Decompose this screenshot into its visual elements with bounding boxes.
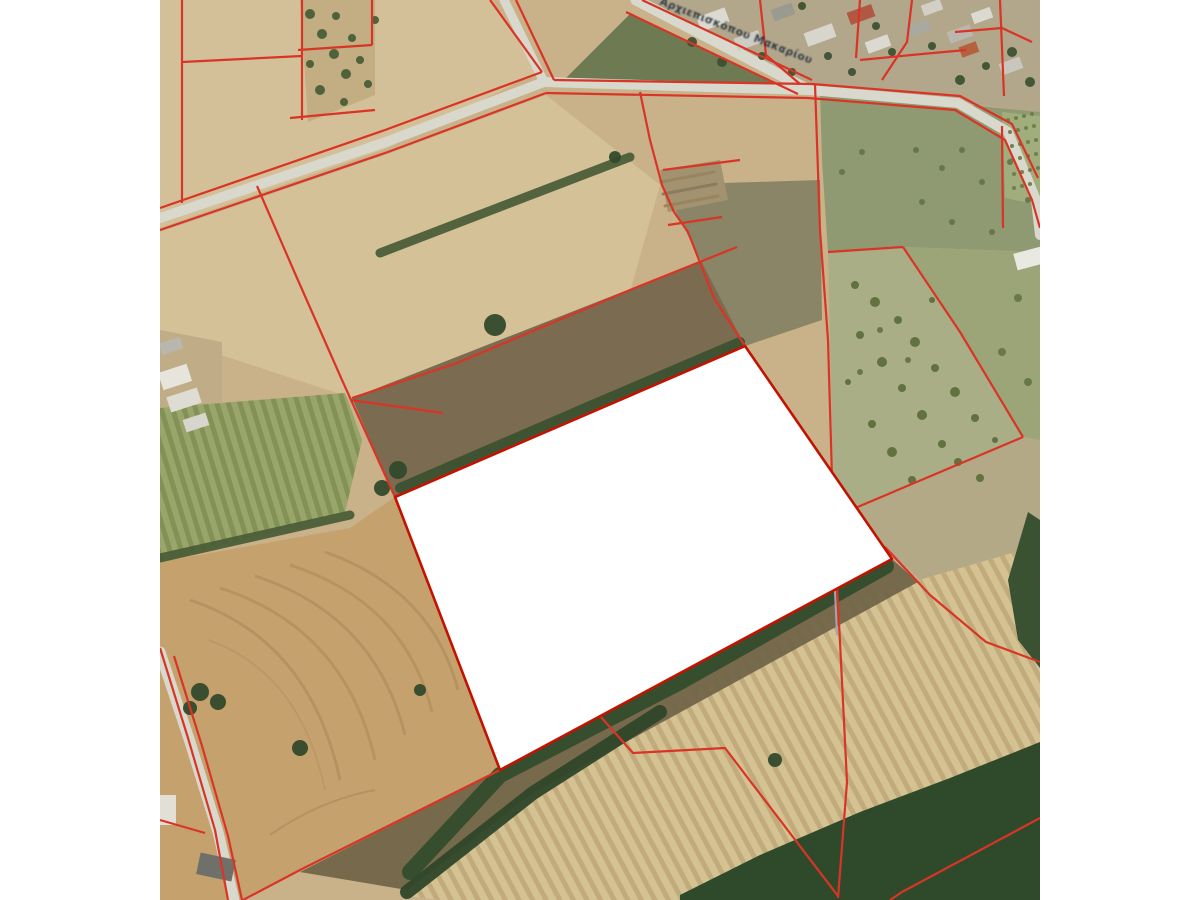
tree <box>484 314 506 336</box>
tree <box>1010 144 1014 148</box>
tree <box>979 179 985 185</box>
tree <box>877 327 883 333</box>
tree <box>1030 112 1034 116</box>
tree <box>1014 116 1018 120</box>
tree <box>998 348 1006 356</box>
tree <box>976 474 984 482</box>
tree <box>856 331 864 339</box>
tree <box>1028 182 1032 186</box>
tree <box>341 69 351 79</box>
tree <box>1008 130 1012 134</box>
tree <box>894 316 902 324</box>
tree <box>1024 126 1028 130</box>
left-white-margin <box>0 0 160 900</box>
tree <box>898 384 906 392</box>
tree <box>851 281 859 289</box>
tree <box>959 147 965 153</box>
tree <box>315 85 325 95</box>
tree <box>1032 124 1036 128</box>
tree <box>950 387 960 397</box>
tree <box>955 75 965 85</box>
tree <box>340 98 348 106</box>
tree <box>1022 114 1026 118</box>
tree <box>857 369 863 375</box>
tree <box>913 147 919 153</box>
tree <box>877 357 887 367</box>
tree <box>292 740 308 756</box>
tree <box>389 461 407 479</box>
tree <box>1012 186 1016 190</box>
tree <box>917 410 927 420</box>
tree <box>931 364 939 372</box>
tree <box>992 437 998 443</box>
tree <box>872 22 880 30</box>
tree <box>1028 168 1032 172</box>
tree <box>887 447 897 457</box>
tree <box>768 753 782 767</box>
tree <box>609 151 621 163</box>
tree <box>1020 184 1024 188</box>
tree <box>868 420 876 428</box>
tree <box>305 9 315 19</box>
tree <box>332 12 340 20</box>
tree <box>210 694 226 710</box>
map-canvas: Αρχιεπισκόπου Μακαρίου <box>160 0 1040 900</box>
tree <box>905 357 911 363</box>
tree <box>939 165 945 171</box>
tree <box>1014 294 1022 302</box>
tree <box>1018 156 1022 160</box>
tree <box>1026 140 1030 144</box>
tree <box>848 68 856 76</box>
tree <box>348 34 356 42</box>
tree <box>1007 47 1017 57</box>
tree <box>989 229 995 235</box>
tree <box>928 42 936 50</box>
tree <box>1024 378 1032 386</box>
tree <box>845 379 851 385</box>
tree <box>870 297 880 307</box>
tree <box>949 219 955 225</box>
tree <box>364 80 372 88</box>
tree <box>982 62 990 70</box>
tree <box>919 199 925 205</box>
right-white-margin <box>1040 0 1200 900</box>
tree <box>1034 152 1038 156</box>
tree <box>824 52 832 60</box>
tree <box>356 56 364 64</box>
tree <box>306 60 314 68</box>
tree <box>888 48 896 56</box>
tree <box>859 149 865 155</box>
tree <box>191 683 209 701</box>
tree <box>839 169 845 175</box>
tree <box>1012 172 1016 176</box>
tree <box>414 684 426 696</box>
parcel-boundary-line <box>1002 126 1003 228</box>
listing-map-screenshot: Αρχιεπισκόπου Μακαρίου <box>0 0 1200 900</box>
tree <box>798 2 806 10</box>
tree <box>329 49 339 59</box>
tree <box>1025 77 1035 87</box>
tree <box>1034 138 1038 142</box>
tree <box>971 414 979 422</box>
tree <box>938 440 946 448</box>
tree <box>929 297 935 303</box>
cadastral-satellite-map[interactable]: Αρχιεπισκόπου Μακαρίου <box>160 0 1040 900</box>
tree <box>910 337 920 347</box>
tree <box>317 29 327 39</box>
